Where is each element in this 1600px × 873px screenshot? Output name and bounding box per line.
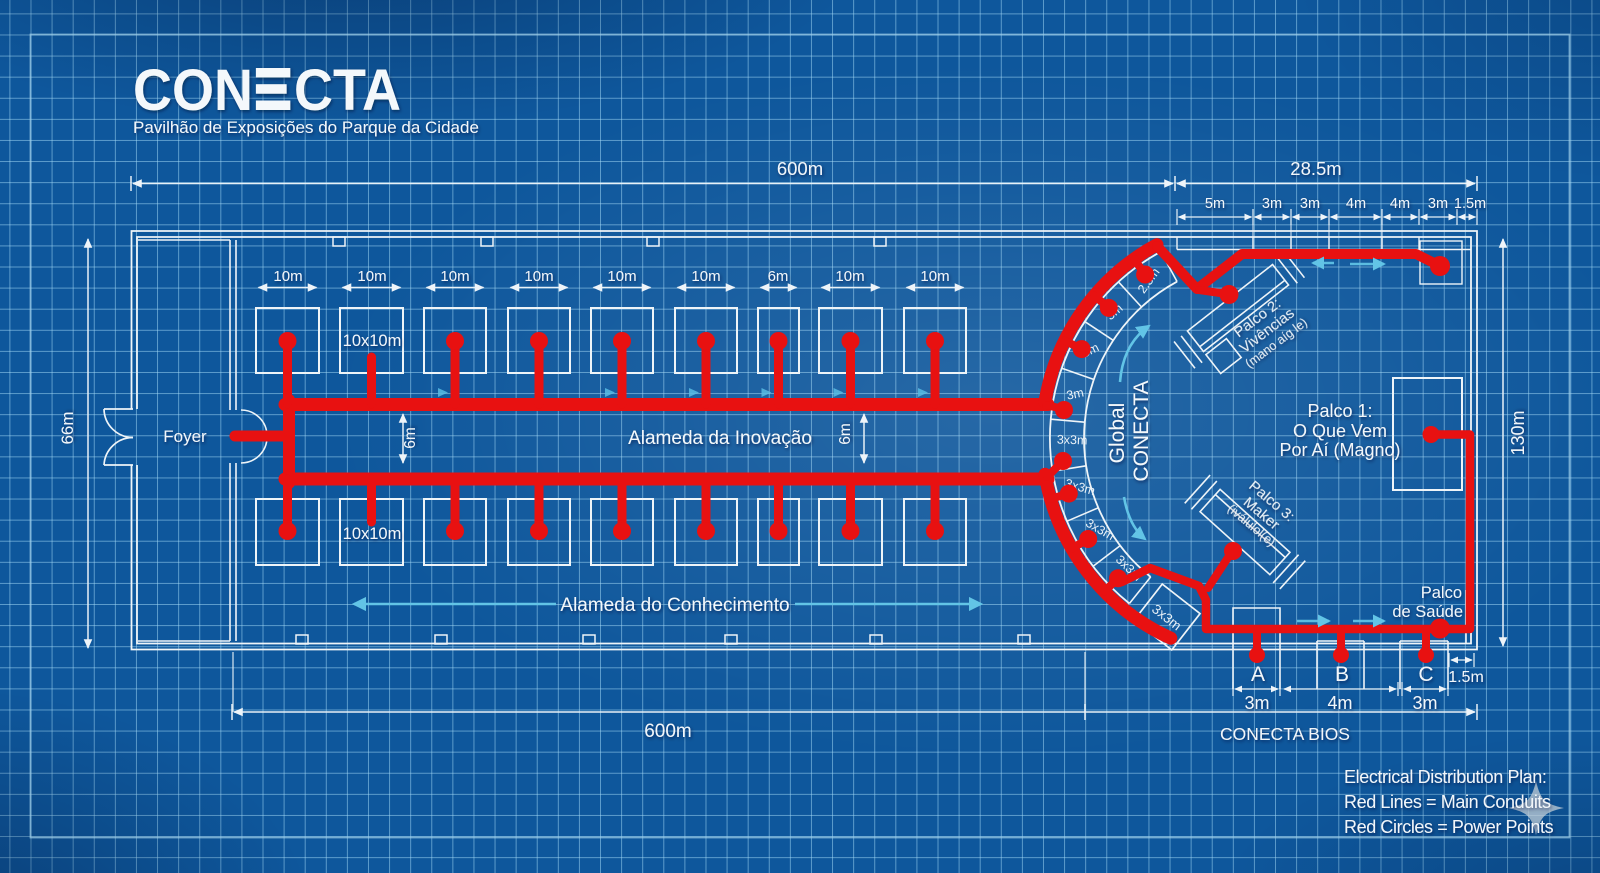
svg-text:4m: 4m [1327, 693, 1352, 713]
svg-text:Red Lines = Main Conduits: Red Lines = Main Conduits [1344, 792, 1551, 812]
svg-text:CONECTA: CONECTA [1130, 380, 1153, 481]
svg-text:28.5m: 28.5m [1290, 158, 1341, 179]
svg-text:3m: 3m [1065, 385, 1085, 402]
svg-text:6m: 6m [402, 427, 419, 449]
svg-text:Pavilhão de Exposições do Parq: Pavilhão de Exposições do Parque da Cida… [133, 118, 479, 137]
svg-text:Global: Global [1106, 403, 1129, 464]
svg-text:10m: 10m [524, 268, 553, 285]
svg-text:10x10m: 10x10m [343, 332, 402, 350]
svg-text:1.5m: 1.5m [1454, 196, 1486, 212]
svg-text:4m: 4m [1346, 196, 1366, 212]
svg-text:1.5m: 1.5m [1448, 669, 1484, 686]
svg-text:Red Circles = Power Points: Red Circles = Power Points [1344, 817, 1554, 837]
svg-text:B: B [1335, 663, 1349, 686]
svg-text:10m: 10m [920, 268, 949, 285]
svg-text:3x3m: 3x3m [1057, 432, 1088, 447]
svg-text:3m: 3m [1412, 693, 1437, 713]
svg-text:Alameda da Inovação: Alameda da Inovação [628, 428, 812, 449]
svg-text:10m: 10m [835, 268, 864, 285]
svg-text:10m: 10m [357, 268, 386, 285]
svg-text:Alameda do Conhecimento: Alameda do Conhecimento [560, 595, 789, 616]
svg-text:CON: CON [133, 57, 253, 122]
svg-text:10m: 10m [273, 268, 302, 285]
svg-text:66m: 66m [58, 411, 77, 444]
svg-text:130m: 130m [1508, 410, 1528, 455]
svg-text:10m: 10m [691, 268, 720, 285]
svg-text:6m: 6m [768, 268, 789, 285]
svg-text:Por Aí (Magno): Por Aí (Magno) [1279, 440, 1400, 460]
svg-text:3m: 3m [1300, 196, 1320, 212]
svg-text:5m: 5m [1205, 196, 1225, 212]
svg-text:10x10m: 10x10m [343, 525, 402, 543]
svg-text:Palco: Palco [1421, 584, 1462, 602]
svg-text:Palco 1:: Palco 1: [1307, 401, 1372, 421]
svg-text:A: A [1251, 663, 1265, 686]
svg-text:O Que Vem: O Que Vem [1293, 421, 1387, 441]
svg-text:CONECTA BIOS: CONECTA BIOS [1220, 724, 1350, 744]
svg-text:10m: 10m [440, 268, 469, 285]
svg-text:4m: 4m [1390, 196, 1410, 212]
svg-text:Foyer: Foyer [163, 427, 207, 446]
svg-text:3m: 3m [1262, 196, 1282, 212]
svg-text:3m: 3m [1244, 693, 1269, 713]
svg-text:de Saúde: de Saúde [1392, 603, 1463, 621]
svg-text:6m: 6m [837, 423, 854, 445]
svg-text:600m: 600m [777, 158, 823, 179]
svg-text:Electrical Distribution Plan:: Electrical Distribution Plan: [1344, 767, 1546, 787]
svg-text:3m: 3m [1428, 196, 1448, 212]
svg-text:600m: 600m [644, 721, 692, 742]
svg-text:C: C [1418, 663, 1433, 686]
svg-text:10m: 10m [607, 268, 636, 285]
svg-text:CTA: CTA [294, 57, 401, 122]
